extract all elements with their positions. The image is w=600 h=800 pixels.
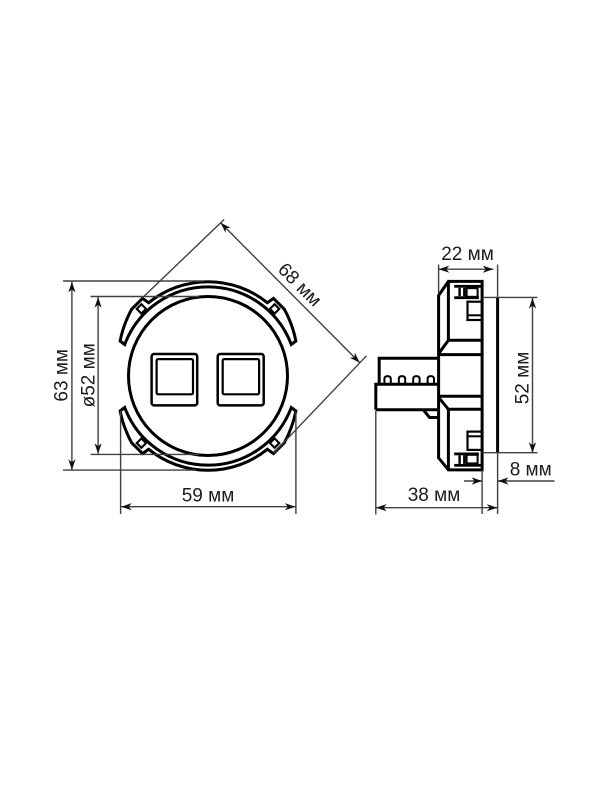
svg-text:59 мм: 59 мм — [182, 486, 235, 507]
svg-text:52 мм: 52 мм — [513, 352, 534, 405]
svg-text:63 мм: 63 мм — [52, 349, 73, 402]
svg-text:68 мм: 68 мм — [273, 259, 325, 311]
svg-text:ø52 мм: ø52 мм — [78, 343, 99, 407]
svg-text:38 мм: 38 мм — [408, 485, 461, 506]
svg-text:8 мм: 8 мм — [510, 460, 552, 481]
svg-text:22 мм: 22 мм — [441, 244, 494, 265]
